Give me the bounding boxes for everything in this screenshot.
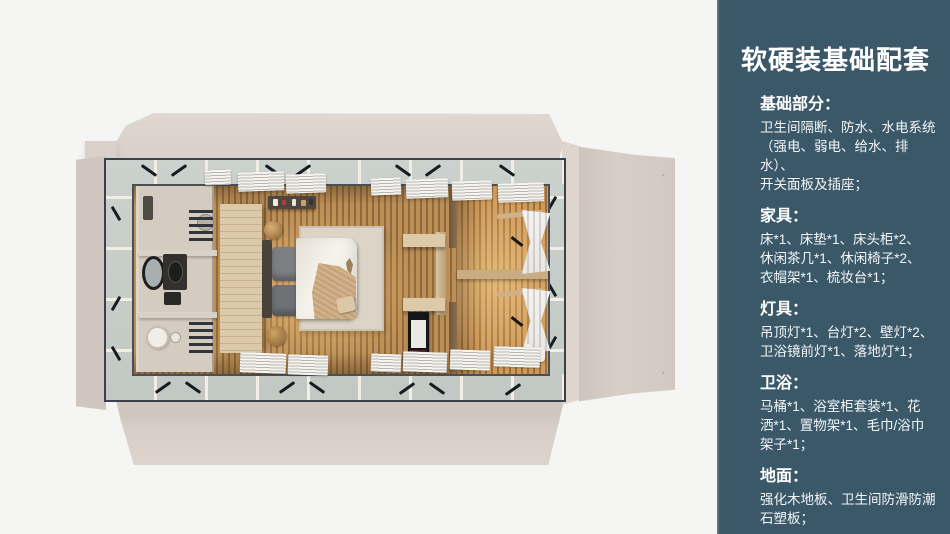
section-heading: 基础部分： <box>760 95 938 115</box>
exterior-panel-right <box>579 144 675 404</box>
dressing-table-shelf <box>403 234 445 247</box>
section-body: 强化木地板、卫生间防滑防潮 石塑板； <box>760 490 938 528</box>
section-body: 床*1、床垫*1、床头柜*2、 休闲茶几*1、休闲椅子*2、 衣帽架*1、梳妆台… <box>760 230 938 287</box>
nightstand-pouf <box>264 221 282 239</box>
window-blind <box>240 352 287 374</box>
panel-title: 软硬装基础配套 <box>741 44 940 76</box>
window-blind <box>452 180 493 200</box>
window-blind <box>371 353 402 372</box>
bathroom <box>136 186 214 372</box>
exterior-panel-bottom <box>116 400 564 465</box>
section-flooring: 地面： 强化木地板、卫生间防滑防潮 石塑板； <box>760 467 938 528</box>
exterior-panel-top <box>103 113 563 163</box>
decor-bottle <box>301 200 306 206</box>
section-heading: 家具： <box>760 207 938 227</box>
shower-fixture <box>143 196 153 220</box>
section-lighting: 灯具： 吊顶灯*1、台灯*2、壁灯*2、 卫浴镜前灯*1、落地灯*1； <box>760 300 938 361</box>
wardrobe <box>220 204 262 353</box>
window-blind <box>238 171 285 192</box>
curtain-tieback <box>511 236 524 247</box>
bed-pillow <box>272 247 298 281</box>
frame-post-band-left <box>106 160 132 400</box>
window-blind <box>286 173 327 193</box>
towel-radiator <box>189 322 213 354</box>
slide: 软硬装基础配套 基础部分： 卫生间隔断、防水、水电系统 （强电、弱电、给水、排水… <box>0 0 950 534</box>
curtain <box>521 210 551 274</box>
window-blind <box>494 346 541 368</box>
section-heading: 灯具： <box>760 300 938 320</box>
towel-radiator <box>189 210 213 242</box>
window-blind <box>498 182 545 203</box>
cabin-top-view-render <box>0 0 717 534</box>
bed-pillow <box>272 285 298 316</box>
section-body: 吊顶灯*1、台灯*2、壁灯*2、 卫浴镜前灯*1、落地灯*1； <box>760 323 938 361</box>
window-blind <box>371 177 402 195</box>
vanity-stool <box>164 292 181 305</box>
curtain-tieback <box>511 316 524 327</box>
section-body: 马桶*1、浴室柜套装*1、花 洒*1、置物架*1、毛巾/浴巾 架子*1； <box>760 397 938 454</box>
section-basics: 基础部分： 卫生间隔断、防水、水电系统 （强电、弱电、给水、排水）、 开关面板及… <box>760 95 938 194</box>
vanity-mirror <box>142 256 165 290</box>
decor-bottle <box>292 199 296 206</box>
window-blind <box>406 178 449 198</box>
bathroom-divider <box>139 312 217 318</box>
coat-rack-shelf <box>268 196 316 209</box>
window-blind <box>288 354 329 375</box>
section-bathroom: 卫浴： 马桶*1、浴室柜套装*1、花 洒*1、置物架*1、毛巾/浴巾 架子*1； <box>760 374 938 454</box>
window-blind <box>403 351 448 373</box>
section-heading: 地面： <box>760 467 938 487</box>
toilet <box>146 326 169 349</box>
nightstand-pouf <box>266 326 286 346</box>
window-blind <box>450 349 491 370</box>
dressing-table-shelf <box>403 298 445 311</box>
cabinet-inner-panel <box>411 320 426 348</box>
panel-sections: 基础部分： 卫生间隔断、防水、水电系统 （强电、弱电、给水、排水）、 开关面板及… <box>760 95 938 528</box>
bed-headboard <box>262 240 272 318</box>
shower-head <box>170 332 181 343</box>
decor-bottle <box>309 199 313 205</box>
section-heading: 卫浴： <box>760 374 938 394</box>
window-blind <box>205 170 232 186</box>
section-body: 卫生间隔断、防水、水电系统 （强电、弱电、给水、排水）、 开关面板及插座； <box>760 118 938 194</box>
decor-bottle <box>273 199 278 206</box>
decor-bottle <box>282 200 286 205</box>
exterior-panel-left <box>76 156 106 410</box>
section-furniture: 家具： 床*1、床垫*1、床头柜*2、 休闲茶几*1、休闲椅子*2、 衣帽架*1… <box>760 207 938 287</box>
vanity-sink-basin <box>168 261 183 283</box>
frame-post-band-bottom <box>106 374 564 400</box>
bathroom-vanity-cabinet <box>163 254 187 290</box>
info-panel: 软硬装基础配套 基础部分： 卫生间隔断、防水、水电系统 （强电、弱电、给水、排水… <box>717 0 950 534</box>
